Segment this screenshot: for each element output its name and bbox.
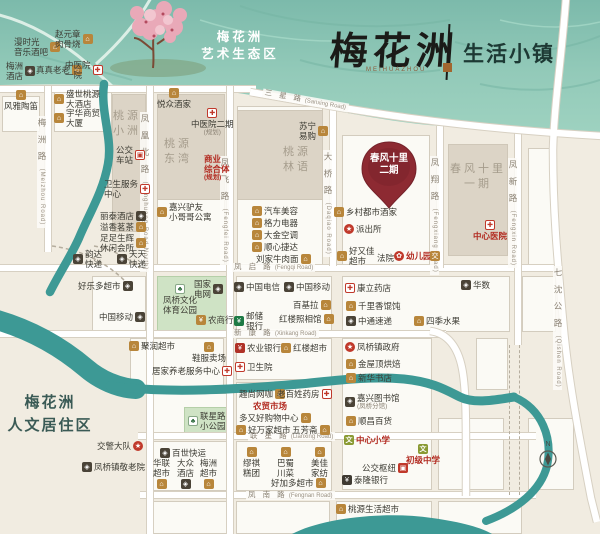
poi-text: 汽车美容 — [264, 206, 298, 216]
poi-text: 新华书店 — [358, 373, 392, 383]
poi-text: (规划) — [204, 174, 230, 182]
road-label: 七 沈 公 路 (Qishen Road) — [553, 266, 562, 390]
poi-凤桥镇政府: ★凤桥镇政府 — [345, 342, 400, 352]
shop-icon: ⌂ — [321, 300, 331, 310]
poi-好万家超市: ⌂好万家超市 — [236, 425, 291, 435]
poi-text: 法院 — [377, 253, 394, 263]
poi-幼儿园: ✿幼儿园 — [394, 251, 432, 261]
poi-text: 居家养老服务中心 — [152, 366, 220, 376]
shop-icon: ⌂ — [136, 238, 146, 248]
logistics-icon: ◈ — [345, 397, 355, 407]
school-icon: 文 — [344, 435, 354, 445]
road-label: 凤 南 路 (Fengnan Road) — [246, 491, 335, 500]
poi-text: 体育公园 — [163, 305, 197, 315]
poi-text: 天天 — [129, 249, 146, 259]
poi-text: 缪祺 — [243, 458, 260, 468]
poi-红楼超市: ⌂红楼超市 — [281, 343, 327, 353]
poi-text: 大众 — [177, 458, 194, 468]
poi-顺昌百货: ⌂顺昌百货 — [346, 416, 392, 426]
road-label: 梅 洲 路 (Meizhou Road) — [37, 116, 46, 228]
poi-大金空调: ⌂大金空调 — [252, 230, 298, 240]
road-label: 凤 新 路 (Fengxin Road) — [508, 158, 517, 268]
kindergarten-flower-icon: ✿ — [394, 251, 404, 261]
poi-text: 聚润超市 — [141, 341, 175, 351]
building-block — [438, 501, 522, 534]
poi-漫时光: 漫时光音乐酒吧⌂ — [14, 37, 60, 57]
poi-百世快运: ◈百世快运 — [160, 448, 206, 458]
shop-icon: ⌂ — [83, 34, 93, 44]
poi-text: 顺心捷达 — [264, 242, 298, 252]
logistics-icon: ◈ — [234, 282, 244, 292]
shop-icon: ⌂ — [204, 342, 214, 352]
poi-新华书店: ⌂新华书店 — [346, 373, 392, 383]
poi-text: 盛世桃源 — [66, 89, 100, 99]
poi-中心医院: ✚中心医院 — [473, 220, 507, 241]
poi-中国移动: 中国移动◈ — [99, 312, 145, 322]
logistics-icon: ◈ — [136, 211, 146, 221]
poi-邮储: ¥邮储银行 — [234, 311, 263, 331]
shop-icon: ⌂ — [252, 230, 262, 240]
brand-english: MEIHUAZHOU — [366, 67, 426, 73]
poi-中心小学: 文中心小学 — [344, 435, 390, 445]
poi-text: 农业银行 — [247, 343, 281, 353]
poi-text: 嘉兴图书馆 — [357, 393, 400, 403]
shop-icon: ⌂ — [252, 206, 262, 216]
poi-好加多超市: 好加多超市⌂ — [271, 478, 326, 488]
poi-text: 超市 — [349, 256, 375, 266]
poi-缪祺: ⌂缪祺糕团 — [243, 447, 260, 478]
shop-icon: ⌂ — [318, 126, 328, 136]
poi-text: 糕团 — [243, 468, 260, 478]
poi-text: 四季水果 — [426, 316, 460, 326]
school-icon: 文 — [418, 444, 428, 454]
poi-text: 卫生院 — [247, 362, 273, 372]
poi-text: 足足生辉 — [100, 233, 134, 243]
poi-商业: 商业综合体(规划) — [204, 154, 230, 182]
eco-zone-label: 梅花洲 艺术生态区 — [196, 29, 284, 63]
poi-中医院: 中医院一院✚ — [65, 60, 103, 80]
logistics-icon: ◈ — [82, 462, 92, 472]
poi-text: 超市 — [153, 468, 170, 478]
building-block — [438, 418, 504, 490]
logistics-icon: ◈ — [181, 479, 191, 489]
poi-text: 公交枢纽 — [362, 463, 396, 473]
shop-icon: ⌂ — [247, 447, 257, 457]
shop-icon: ⌂ — [252, 218, 262, 228]
building-block — [476, 338, 508, 390]
bank-icon: ¥ — [196, 315, 206, 325]
poi-嘉兴图书馆: ◈嘉兴图书馆(凤桥分馆) — [345, 393, 400, 411]
poi-text: 快递 — [129, 259, 146, 269]
poi-好乐多超市: 好乐多超市◈ — [78, 281, 133, 291]
poi-text: 农商行 — [208, 315, 234, 325]
poi-text: 中国移动 — [296, 282, 330, 292]
shop-icon: ⌂ — [16, 90, 26, 100]
poi-联星路: ♣联星路小公园 — [188, 411, 226, 431]
poi-汽车美容: ⌂汽车美容 — [252, 206, 298, 216]
poi-赵元章: 赵元章肉骨烧⌂ — [55, 29, 93, 49]
poi-text: 格力电器 — [264, 218, 298, 228]
poi-text: 一院 — [65, 70, 91, 80]
poi-text: 康立药店 — [357, 283, 391, 293]
poi-text: 苏宁 — [299, 121, 316, 131]
poi-text: 乡村都市酒家 — [346, 207, 397, 217]
logistics-icon: ◈ — [213, 284, 223, 294]
poi-text: 好万家超市 — [248, 425, 291, 435]
poi-交警大队: 交警大队★ — [97, 441, 143, 451]
brand-seal-icon — [443, 63, 452, 72]
park-tree-icon: ♣ — [175, 284, 185, 294]
shop-icon: ⌂ — [336, 504, 346, 514]
area-label: 桃源小洲 — [113, 109, 141, 140]
poi-农贸市场: 农贸市场 — [253, 401, 287, 411]
poi-风雅陶笛: ⌂风雅陶笛 — [4, 90, 38, 111]
poi-派出所: ★派出所 — [344, 224, 382, 234]
area-label: 桃源东湾 — [164, 137, 192, 168]
shop-icon: ⌂ — [54, 113, 64, 123]
road — [140, 491, 536, 499]
poi-text: 鞋服卖场 — [192, 353, 226, 363]
poi-聚润超市: ⌂聚润超市 — [129, 341, 175, 351]
shop-icon: ⌂ — [315, 447, 325, 457]
poi-text: 小公园 — [200, 421, 226, 431]
planned-road — [509, 345, 520, 495]
poi-中国移动: ◈中国移动 — [284, 282, 330, 292]
poi-text: 车站 — [116, 155, 133, 165]
poi-text: 美佳 — [311, 458, 328, 468]
poi-百基拉: 百基拉⌂ — [293, 300, 331, 310]
poi-text: 老百姓药房 — [277, 389, 320, 399]
poi-刘家牛肉面: 刘家牛肉面⌂ — [256, 254, 311, 264]
poi-text: 丽泰酒店 — [100, 211, 134, 221]
poi-text: 好乐多超市 — [78, 281, 121, 291]
poi-text: 溢香茗茶 — [100, 222, 134, 232]
poi-农商行: ¥农商行 — [196, 315, 234, 325]
poi-text: 大厦 — [66, 118, 100, 128]
hospital-cross-icon: ✚ — [235, 362, 245, 372]
poi-text: 嘉兴驴友 — [169, 202, 212, 212]
shop-icon: ⌂ — [414, 316, 424, 326]
poi-中国电信: ◈中国电信 — [234, 282, 280, 292]
poi-text: 悦众酒家 — [157, 99, 191, 109]
hospital-cross-icon: ✚ — [345, 283, 355, 293]
shop-icon: ⌂ — [204, 479, 214, 489]
poi-text: 商业 — [204, 154, 230, 164]
poi-千里香馄饨: ⌂千里香馄饨 — [346, 301, 401, 311]
poi-text: 趣尚网咖 — [239, 389, 273, 399]
logistics-icon: ◈ — [73, 254, 83, 264]
poi-大众: 大众酒店◈ — [177, 458, 194, 489]
poi-顺心捷达: ⌂顺心捷达 — [252, 242, 298, 252]
building-block — [522, 276, 556, 332]
road — [0, 330, 446, 338]
poi-丽泰酒店: 丽泰酒店◈ — [100, 211, 146, 221]
poi-天天: ◈天天快递 — [117, 249, 146, 269]
poi-text: 梅洲 — [6, 61, 23, 71]
hospital-cross-icon: ✚ — [207, 108, 217, 118]
poi-巴蜀: ⌂巴蜀川菜 — [277, 447, 294, 478]
poi-韵达: ◈韵达快递 — [73, 249, 102, 269]
poi-text: 华数 — [473, 280, 490, 290]
poi-text: 红楼照相馆 — [279, 314, 322, 324]
government-star-icon: ★ — [345, 342, 355, 352]
poi-鞋服卖场: ⌂鞋服卖场 — [192, 342, 226, 363]
poi-text: 酒店 — [177, 468, 194, 478]
poi-text: 联星路 — [200, 411, 226, 421]
shop-icon: ⌂ — [252, 242, 262, 252]
poi-泰隆银行: ¥泰隆银行 — [342, 475, 388, 485]
poi-text: 五芳斋 — [292, 425, 318, 435]
poi-text: 好加多超市 — [271, 478, 314, 488]
poi-text: 大金空调 — [264, 230, 298, 240]
town-suffix: 生活小镇 — [463, 38, 555, 68]
poi-text: 超市 — [200, 468, 217, 478]
poi-公交枢纽: 公交枢纽▣ — [362, 463, 408, 473]
poi-五芳斋: 五芳斋⌂ — [292, 425, 330, 435]
poi-text: 百世快运 — [172, 448, 206, 458]
hospital-cross-icon: ✚ — [485, 220, 495, 230]
poi-居家养老服务中心: 居家养老服务中心✚ — [152, 366, 232, 376]
shop-icon: ⌂ — [54, 94, 64, 104]
poi-text: 快递 — [85, 259, 102, 269]
poi-桃源生活超市: ⌂桃源生活超市 — [336, 504, 399, 514]
poi-老百姓药房: 老百姓药房✚ — [277, 389, 332, 399]
poi-text: 顺昌百货 — [358, 416, 392, 426]
poi-text: 幼儿园 — [406, 251, 432, 261]
poi-text: 梅洲 — [200, 458, 217, 468]
building-block — [148, 501, 228, 534]
shop-icon: ⌂ — [157, 479, 167, 489]
poi-text: 卫生服务 — [104, 179, 138, 189]
hospital-cross-icon: ✚ — [222, 366, 232, 376]
logistics-icon: ◈ — [25, 66, 35, 76]
bank-icon: ¥ — [235, 343, 245, 353]
poi-jiao: 交 — [430, 251, 440, 261]
shop-icon: ⌂ — [157, 207, 167, 217]
poi-text: 银行 — [246, 321, 263, 331]
poi-四季水果: ⌂四季水果 — [414, 316, 460, 326]
poi-text: 风雅陶笛 — [4, 101, 38, 111]
poi-text: 金屋顶烘焙 — [358, 359, 401, 369]
poi-text: 公交 — [116, 145, 133, 155]
postal-bank-icon: ¥ — [234, 316, 244, 326]
shop-icon: ⌂ — [236, 425, 246, 435]
poi-格力电器: ⌂格力电器 — [252, 218, 298, 228]
poi-text: (规划) — [204, 129, 221, 137]
poi-华联: 华联超市⌂ — [153, 458, 170, 489]
hospital-cross-icon: ✚ — [93, 65, 103, 75]
poi-苏宁: 苏宁易购⌂ — [299, 121, 328, 141]
poi-多又好购物中心: 多又好购物中心⌂ — [239, 413, 311, 423]
logistics-icon: ◈ — [123, 281, 133, 291]
poi-text: 凤桥文化 — [163, 295, 197, 305]
hospital-cross-icon: ✚ — [140, 184, 150, 194]
logistics-icon: ◈ — [135, 312, 145, 322]
pin-line1: 春风十里 — [357, 153, 421, 165]
poi-宇华商贸: ⌂宇华商贸大厦 — [54, 108, 100, 128]
shop-icon: ⌂ — [320, 425, 330, 435]
poi-公交: 公交车站▣ — [116, 145, 145, 165]
shop-icon: ⌂ — [346, 416, 356, 426]
poi-国家: 国家电网◈ — [194, 279, 223, 299]
road-label: 大 桥 路 (Daqiao Road) — [323, 150, 332, 257]
logistics-icon: ◈ — [284, 282, 294, 292]
poi-text: 多又好购物中心 — [239, 413, 299, 423]
bus-station-icon: ▣ — [135, 150, 145, 160]
poi-text: 酒店 — [6, 71, 23, 81]
poi-text: 韵达 — [85, 249, 102, 259]
shop-icon: ⌂ — [346, 373, 356, 383]
poi-text: 华联 — [153, 458, 170, 468]
pin-line2: 二期 — [357, 165, 421, 177]
logistics-icon: ◈ — [117, 254, 127, 264]
poi-text: 中医院 — [65, 60, 91, 70]
poi-text: 刘家牛肉面 — [256, 254, 299, 264]
poi-美佳: ⌂美佳家纺 — [311, 447, 328, 478]
poi-text: 凤桥镇政府 — [357, 342, 400, 352]
poi-text: 红楼超市 — [293, 343, 327, 353]
traffic-icon: 交 — [430, 251, 440, 261]
road-label: 凤 启 路 (Fengqi Road) — [232, 263, 315, 272]
poi-好又佳: ⌂好又佳超市 — [337, 246, 375, 266]
hospital-cross-icon: ✚ — [322, 389, 332, 399]
building-block — [236, 501, 330, 534]
poi-梅洲: 梅洲酒店◈ — [6, 61, 35, 81]
poi-凤桥文化: ♣凤桥文化体育公园 — [163, 284, 197, 315]
poi-中医院二期: ✚中医院二期(规划) — [191, 108, 234, 137]
area-label: 桃源林语 — [283, 145, 311, 176]
poi-text: 宇华商贸 — [66, 108, 100, 118]
poi-text: 家纺 — [311, 468, 328, 478]
poi-text: 初级中学 — [406, 455, 440, 465]
plum-tree-illustration — [110, 1, 206, 77]
park-tree-icon: ♣ — [188, 416, 198, 426]
shop-icon: ⌂ — [136, 222, 146, 232]
poi-乡村都市酒家: ⌂乡村都市酒家 — [334, 207, 397, 217]
pin-label: 春风十里 二期 — [357, 153, 421, 178]
poi-text: 农贸市场 — [253, 401, 287, 411]
poi-法院: 法院 — [377, 253, 394, 263]
residential-zone-label: 梅花洲 人文居住区 — [0, 391, 100, 438]
logistics-icon: ◈ — [160, 448, 170, 458]
shop-icon: ⌂ — [169, 88, 179, 98]
poi-text: 泰隆银行 — [354, 475, 388, 485]
poi-text: 中心 — [104, 189, 138, 199]
shop-icon: ⌂ — [324, 314, 334, 324]
poi-text: 漫时光 — [14, 37, 48, 47]
poi-text: 凤桥镇敬老院 — [94, 462, 145, 472]
poi-红楼照相馆: 红楼照相馆⌂ — [279, 314, 334, 324]
shop-icon: ⌂ — [301, 413, 311, 423]
poi-text: 肉骨烧 — [55, 39, 81, 49]
poi-金屋顶烘焙: ⌂金屋顶烘焙 — [346, 359, 401, 369]
shop-icon: ⌂ — [301, 254, 311, 264]
poi-text: 小哥哥公寓 — [169, 212, 212, 222]
poi-text: 巴蜀 — [277, 458, 294, 468]
shop-icon: ⌂ — [316, 478, 326, 488]
logistics-icon: ◈ — [346, 316, 356, 326]
poi-text: 中心医院 — [473, 231, 507, 241]
poi-嘉兴驴友: ⌂嘉兴驴友小哥哥公寓 — [157, 202, 212, 222]
poi-text: 邮储 — [246, 311, 263, 321]
poi-梅洲: 梅洲超市⌂ — [200, 458, 217, 489]
poi-盛世桃源: ⌂盛世桃源大酒店 — [54, 89, 100, 109]
poi-text: 综合体 — [204, 164, 230, 174]
shop-icon: ⌂ — [281, 447, 291, 457]
poi-溢香茗茶: 溢香茗茶⌂ — [100, 222, 146, 232]
poi-悦众酒家: ⌂悦众酒家 — [157, 88, 191, 109]
poi-卫生服务: 卫生服务中心✚ — [104, 179, 150, 199]
poi-中通速递: ◈中通速递 — [346, 316, 392, 326]
bank-icon: ¥ — [342, 475, 352, 485]
poi-text: 中通速递 — [358, 316, 392, 326]
government-star-icon: ★ — [344, 224, 354, 234]
poi-text: 易购 — [299, 131, 316, 141]
bus-hub-icon: ▣ — [398, 463, 408, 473]
shop-icon: ⌂ — [334, 207, 344, 217]
poi-text: 交警大队 — [97, 441, 131, 451]
poi-卫生院: ✚卫生院 — [235, 362, 273, 372]
poi-康立药店: ✚康立药店 — [345, 283, 391, 293]
area-label: 春风十里一期 — [450, 162, 506, 193]
poi-text: 桃源生活超市 — [348, 504, 399, 514]
poi-凤桥镇敬老院: ◈凤桥镇敬老院 — [82, 462, 145, 472]
shop-icon: ⌂ — [346, 301, 356, 311]
road — [0, 85, 256, 93]
logistics-icon: ◈ — [461, 280, 471, 290]
building-block — [528, 148, 556, 266]
poi-text: 中国电信 — [246, 282, 280, 292]
poi-text: 音乐酒吧 — [14, 47, 48, 57]
poi-text: 中医院二期 — [191, 119, 234, 129]
compass-icon: N — [537, 441, 559, 474]
shop-icon: ⌂ — [346, 359, 356, 369]
poi-text: 千里香馄饨 — [358, 301, 401, 311]
road — [138, 432, 536, 440]
government-star-icon: ★ — [133, 441, 143, 451]
poi-text: 派出所 — [356, 224, 382, 234]
poi-text: 好又佳 — [349, 246, 375, 256]
shop-icon: ⌂ — [281, 343, 291, 353]
poi-农业银行: ¥农业银行 — [235, 343, 281, 353]
poi-text: 百基拉 — [293, 300, 319, 310]
poi-text: 赵元章 — [55, 29, 81, 39]
poi-text: 中国移动 — [99, 312, 133, 322]
poi-text: 中心小学 — [356, 435, 390, 445]
poi-text: 川菜 — [277, 468, 294, 478]
poi-text: (凤桥分馆) — [357, 403, 400, 411]
shop-icon: ⌂ — [129, 341, 139, 351]
poi-华数: ◈华数 — [461, 280, 490, 290]
meihuazhou-town-map: 春风十里 二期 梅花洲 艺术生态区 梅花洲 人文居住区 梅花洲 MEIHUAZH… — [0, 0, 600, 534]
poi-初级中学: 文初级中学 — [406, 444, 440, 465]
shop-icon: ⌂ — [337, 251, 347, 261]
